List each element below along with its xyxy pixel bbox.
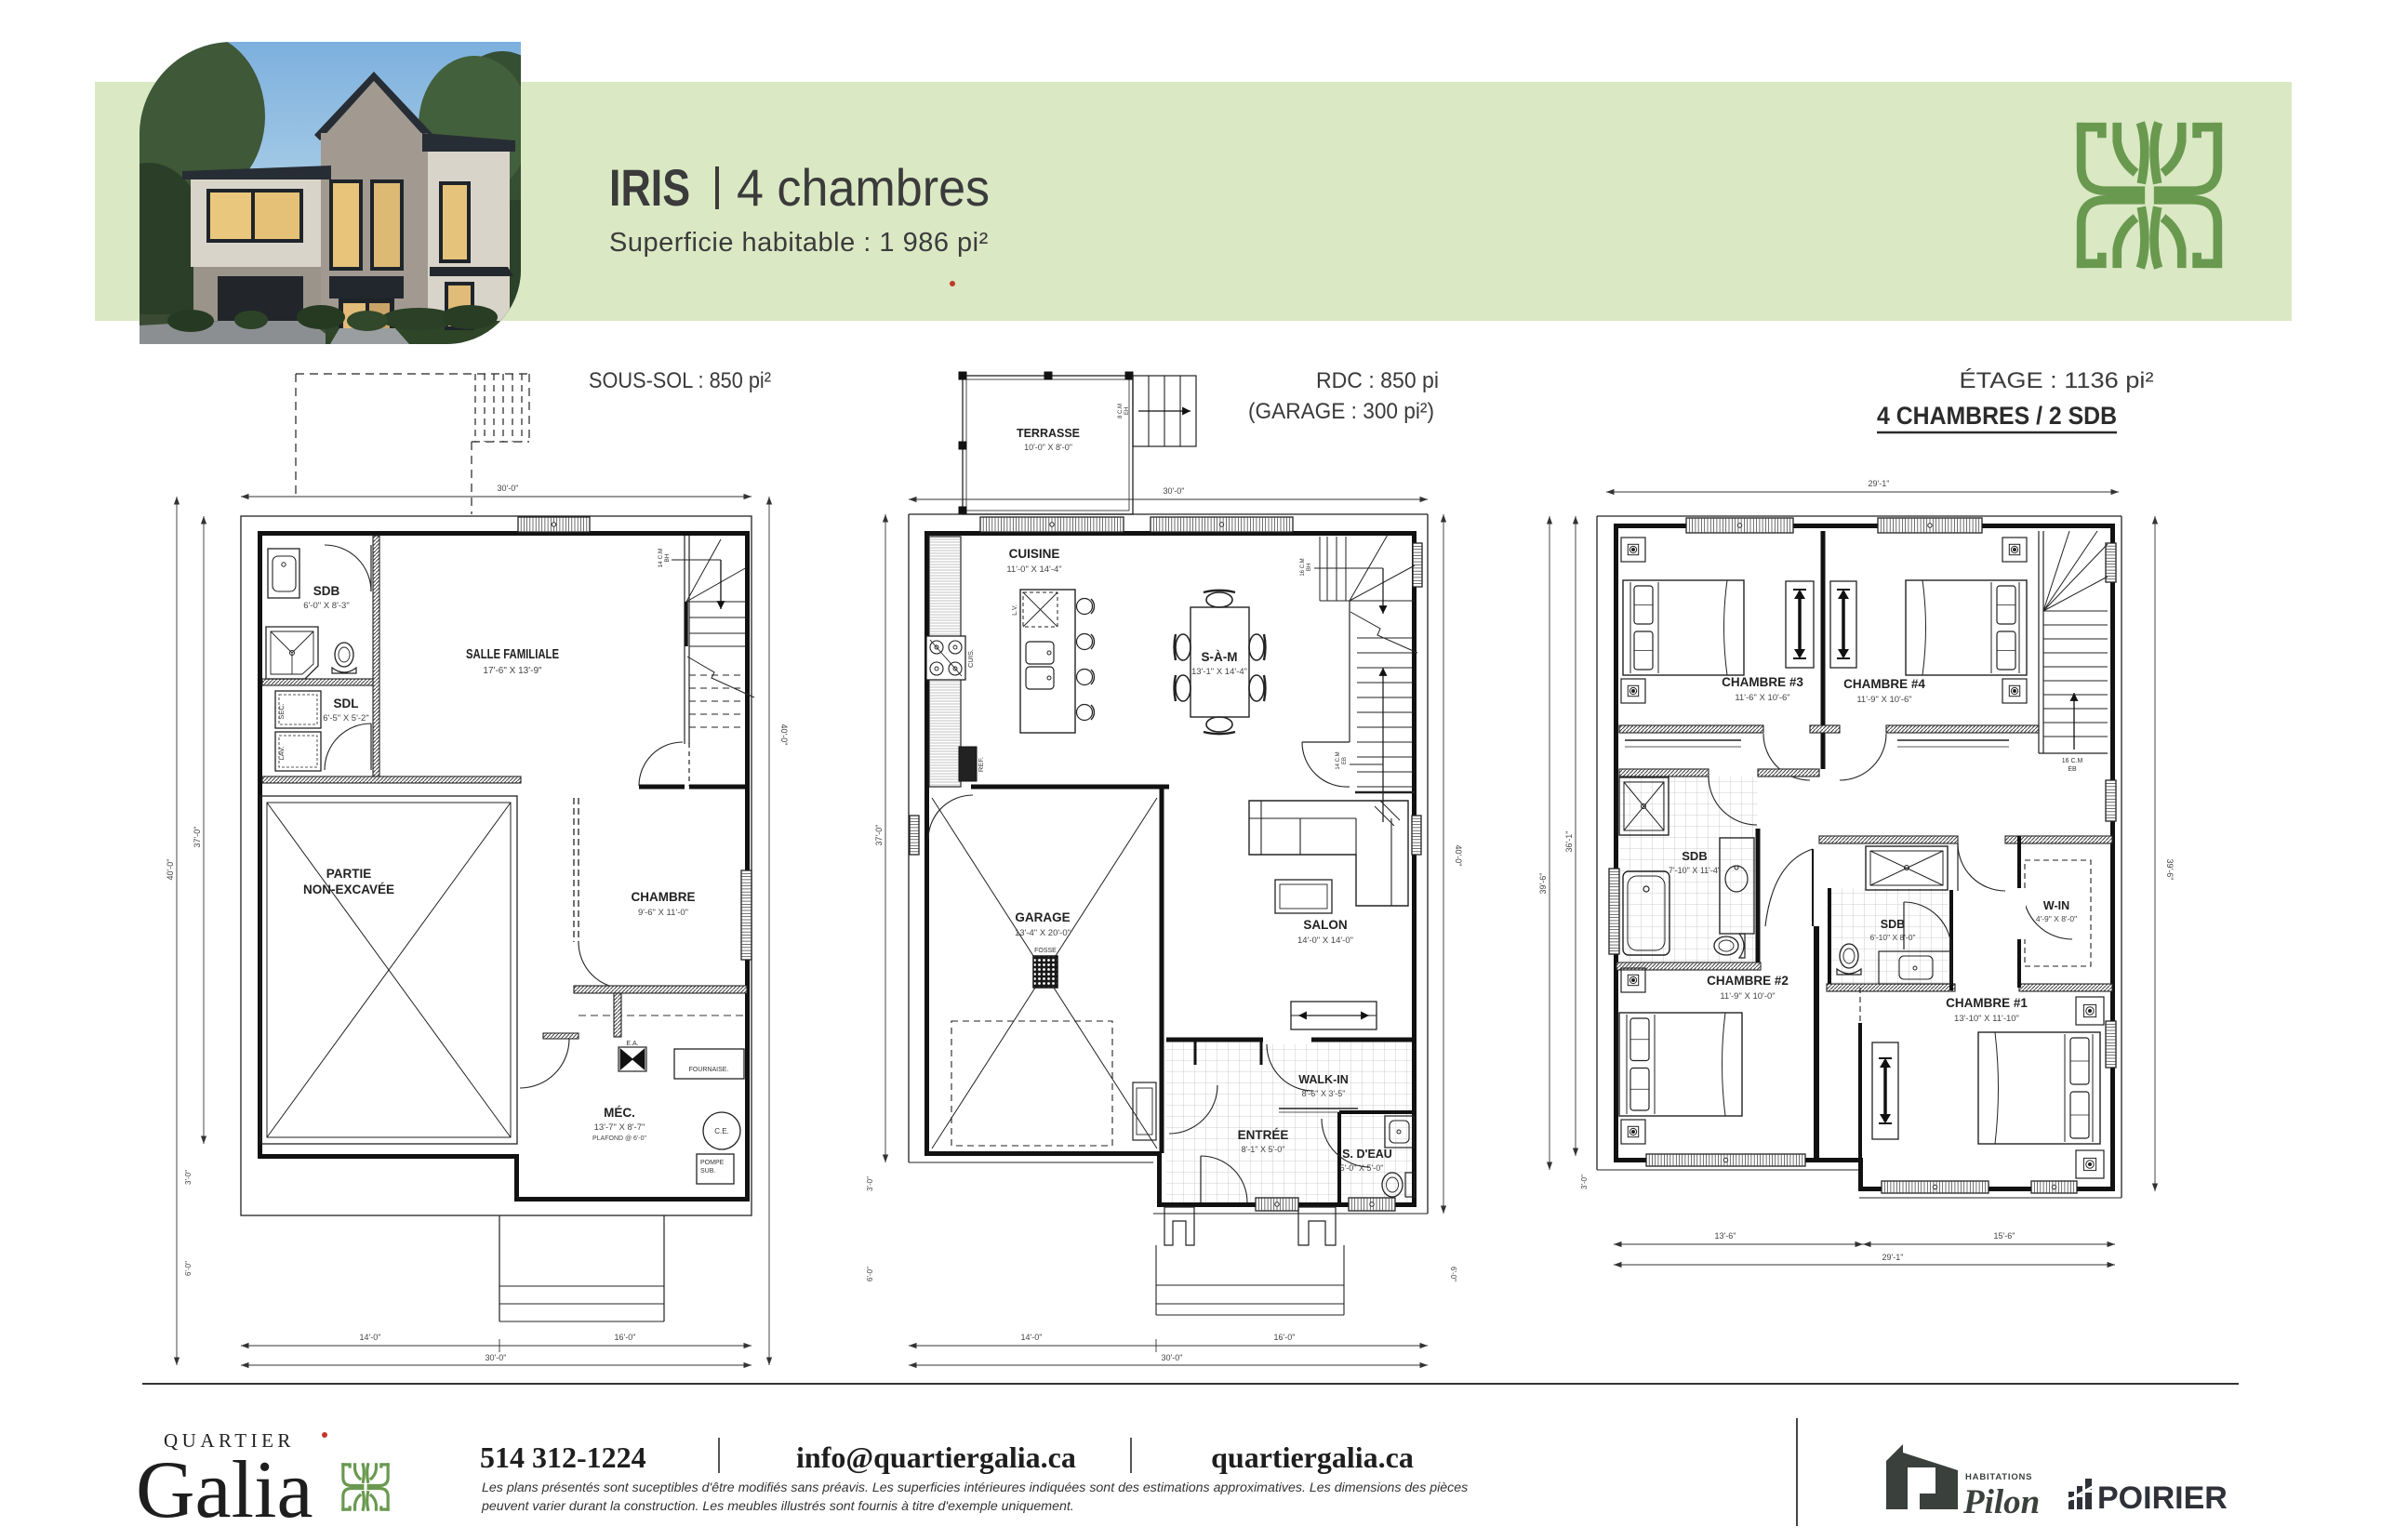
svg-text:6'-0": 6'-0" xyxy=(1449,1267,1457,1281)
svg-text:39'-6": 39'-6" xyxy=(1538,873,1548,895)
svg-text:C.E.: C.E. xyxy=(714,1127,729,1135)
svg-text:16'-0": 16'-0" xyxy=(1274,1333,1296,1342)
svg-text:BH: BH xyxy=(1307,564,1312,571)
svg-text:14'-0" X 14'-0": 14'-0" X 14'-0" xyxy=(1297,936,1353,946)
svg-text:7'-10" X 11'-4": 7'-10" X 11'-4" xyxy=(1669,866,1721,875)
svg-text:37'-0": 37'-0" xyxy=(874,825,884,846)
svg-text:BH: BH xyxy=(664,553,671,562)
svg-text:6'-0" X 8'-3": 6'-0" X 8'-3" xyxy=(303,601,349,611)
svg-text:13'-6": 13'-6" xyxy=(1715,1231,1736,1241)
svg-text:40'-0": 40'-0" xyxy=(779,724,789,746)
svg-text:6'-0": 6'-0" xyxy=(184,1261,193,1276)
svg-text:30'-0": 30'-0" xyxy=(1162,1353,1183,1362)
svg-text:PARTIE: PARTIE xyxy=(326,867,372,881)
svg-text:SDB: SDB xyxy=(313,584,340,598)
svg-text:15'-6": 15'-6" xyxy=(1994,1231,2015,1241)
svg-text:4'-9" X 8'-0": 4'-9" X 8'-0" xyxy=(2036,914,2077,923)
svg-text:13'-1" X 14'-4": 13'-1" X 14'-4" xyxy=(1191,667,1247,677)
svg-text:SALON: SALON xyxy=(1303,918,1347,932)
svg-text:E.A.: E.A. xyxy=(626,1041,638,1047)
svg-text:3'-0": 3'-0" xyxy=(184,1170,193,1185)
svg-text:37'-0": 37'-0" xyxy=(193,827,202,848)
svg-text:REF.: REF. xyxy=(977,757,985,772)
svg-text:SALLE FAMILIALE: SALLE FAMILIALE xyxy=(466,647,559,662)
svg-text:36'-1": 36'-1" xyxy=(1564,831,1574,853)
svg-text:11'-9" X 10'-0": 11'-9" X 10'-0" xyxy=(1720,991,1775,1002)
svg-text:6'-10" X 8'-0": 6'-10" X 8'-0" xyxy=(1870,933,1916,942)
svg-text:W-IN: W-IN xyxy=(2043,899,2069,912)
svg-text:SUB.: SUB. xyxy=(700,1168,715,1175)
svg-text:SDB: SDB xyxy=(1682,849,1707,863)
svg-text:ÉTAGE : 1136 pi²: ÉTAGE : 1136 pi² xyxy=(1960,368,2154,393)
svg-text:HABITATIONS: HABITATIONS xyxy=(1965,1472,2032,1482)
svg-text:SEC.: SEC. xyxy=(277,703,286,720)
svg-text:POIRIER: POIRIER xyxy=(2097,1480,2228,1516)
svg-text:29'-1": 29'-1" xyxy=(1882,1253,1904,1262)
svg-text:6'-0": 6'-0" xyxy=(866,1267,874,1281)
svg-text:40'-0": 40'-0" xyxy=(166,859,175,881)
svg-text:30'-0": 30'-0" xyxy=(498,484,519,493)
svg-text:13'-4" X 20'-0": 13'-4" X 20'-0" xyxy=(1015,928,1071,938)
svg-text:13'-10" X 11'-10": 13'-10" X 11'-10" xyxy=(1954,1014,2019,1024)
svg-text:CHAMBRE #1: CHAMBRE #1 xyxy=(1946,996,2028,1010)
svg-text:17'-6" X 13'-9": 17'-6" X 13'-9" xyxy=(483,666,542,676)
svg-text:Pilon: Pilon xyxy=(1962,1483,2040,1521)
svg-text:PLAFOND @ 6'-0": PLAFOND @ 6'-0" xyxy=(592,1135,647,1142)
svg-text:9'-6" X 11'-0": 9'-6" X 11'-0" xyxy=(638,908,688,918)
svg-text:RDC : 850 pi: RDC : 850 pi xyxy=(1316,368,1439,393)
svg-text:11'-0" X 14'-4": 11'-0" X 14'-4" xyxy=(1006,564,1061,575)
svg-text:CHAMBRE #4: CHAMBRE #4 xyxy=(1843,677,1925,691)
svg-text:39'-6": 39'-6" xyxy=(2165,859,2175,881)
svg-text:CHAMBRE #2: CHAMBRE #2 xyxy=(1707,974,1789,988)
svg-text:14'-0": 14'-0" xyxy=(1021,1333,1043,1342)
svg-text:6'-5" X 5'-2": 6'-5" X 5'-2" xyxy=(323,713,368,724)
svg-text:EB: EB xyxy=(1342,757,1348,764)
svg-text:POMPE: POMPE xyxy=(700,1160,725,1166)
svg-text:S. D'EAU: S. D'EAU xyxy=(1342,1148,1392,1161)
svg-text:29'-1": 29'-1" xyxy=(1869,479,1890,488)
svg-text:11'-9" X 10'-6": 11'-9" X 10'-6" xyxy=(1856,695,1911,705)
svg-text:CHAMBRE: CHAMBRE xyxy=(632,890,696,904)
svg-text:16 C.M: 16 C.M xyxy=(2062,758,2083,764)
svg-text:SDB: SDB xyxy=(1881,918,1905,931)
svg-text:3'-0": 3'-0" xyxy=(1580,1175,1589,1189)
svg-text:CUIS.: CUIS. xyxy=(966,649,975,668)
svg-text:EH: EH xyxy=(1124,407,1130,415)
svg-text:30'-0": 30'-0" xyxy=(1164,486,1185,496)
svg-text:FOSSE: FOSSE xyxy=(1034,948,1057,954)
svg-text:ENTRÉE: ENTRÉE xyxy=(1238,1128,1289,1142)
svg-text:WALK-IN: WALK-IN xyxy=(1298,1073,1348,1086)
svg-text:CHAMBRE #3: CHAMBRE #3 xyxy=(1722,675,1803,689)
svg-text:LAV.: LAV. xyxy=(277,746,286,760)
svg-text:14 C.M: 14 C.M xyxy=(658,549,664,568)
svg-text:8'-1" X 5'-0": 8'-1" X 5'-0" xyxy=(1242,1145,1285,1154)
svg-text:40'-0": 40'-0" xyxy=(1454,845,1463,867)
svg-text:TERRASSE: TERRASSE xyxy=(1017,427,1080,440)
svg-text:4 CHAMBRES / 2 SDB: 4 CHAMBRES / 2 SDB xyxy=(1877,402,2117,430)
svg-text:SDL: SDL xyxy=(334,697,359,710)
svg-text:16 C.M: 16 C.M xyxy=(1300,558,1306,576)
svg-text:13'-7" X 8'-7": 13'-7" X 8'-7" xyxy=(594,1122,645,1133)
svg-text:16'-0": 16'-0" xyxy=(615,1333,636,1342)
svg-text:11'-6" X 10'-6": 11'-6" X 10'-6" xyxy=(1735,693,1789,703)
svg-text:5'-0" X 5'-0": 5'-0" X 5'-0" xyxy=(1340,1163,1384,1173)
svg-text:EB: EB xyxy=(2068,766,2077,773)
svg-text:10'-0" X 8'-0": 10'-0" X 8'-0" xyxy=(1024,443,1072,452)
svg-text:14 C.M: 14 C.M xyxy=(1336,751,1341,769)
svg-text:L.V.: L.V. xyxy=(1012,604,1018,616)
svg-text:GARAGE: GARAGE xyxy=(1015,910,1070,924)
svg-text:FOURNAISE.: FOURNAISE. xyxy=(689,1067,729,1073)
svg-text:MÉC.: MÉC. xyxy=(604,1106,635,1120)
svg-text:S-À-M: S-À-M xyxy=(1202,650,1238,664)
svg-text:NON-EXCAVÉE: NON-EXCAVÉE xyxy=(303,883,394,896)
svg-text:14'-0": 14'-0" xyxy=(360,1333,381,1342)
svg-text:(GARAGE : 300 pi²): (GARAGE : 300 pi²) xyxy=(1248,399,1434,424)
svg-text:SOUS-SOL : 850 pi²: SOUS-SOL : 850 pi² xyxy=(589,368,771,393)
svg-text:30'-0": 30'-0" xyxy=(486,1353,507,1362)
svg-text:CUISINE: CUISINE xyxy=(1009,547,1060,561)
svg-text:3'-0": 3'-0" xyxy=(866,1176,874,1191)
svg-text:8 C.M: 8 C.M xyxy=(1118,404,1124,418)
